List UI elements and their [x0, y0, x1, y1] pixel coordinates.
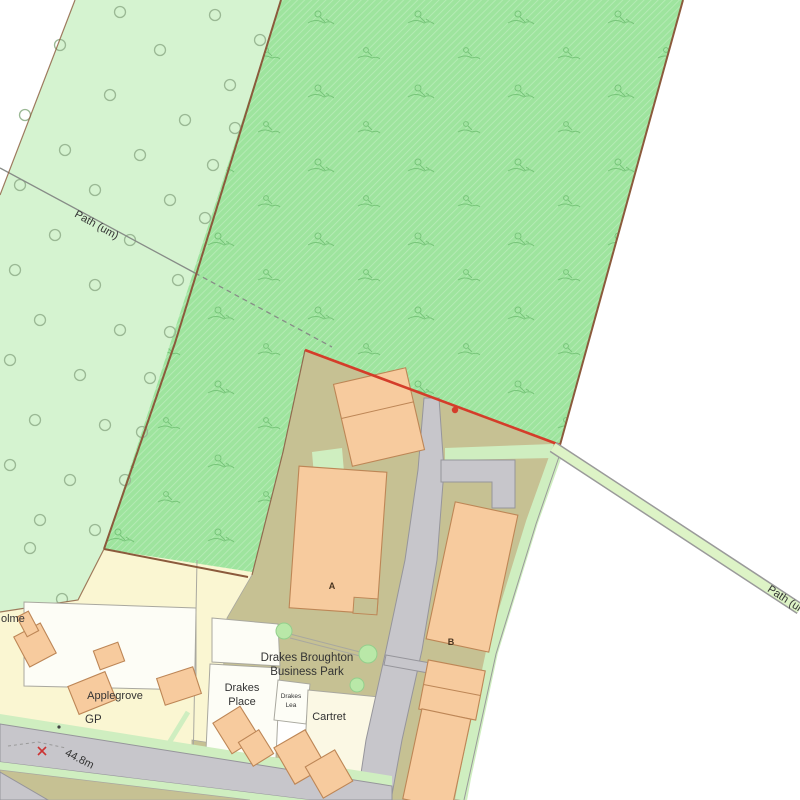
- spot-height-point: [57, 725, 60, 728]
- drakes-lea-label-2: Lea: [286, 702, 297, 709]
- drakes-place-label-2: Place: [228, 696, 256, 708]
- business-park-label-1: Drakes Broughton: [261, 652, 354, 664]
- unit-a: [289, 466, 387, 615]
- os-map: Path (um) Path (um) olme Applegrove GP 4…: [0, 0, 800, 800]
- bush-icon: [359, 645, 377, 663]
- drakes-lea-label-1: Drakes: [281, 693, 302, 700]
- building-a-label: A: [329, 581, 336, 591]
- map-canvas: Path (um) Path (um) olme Applegrove GP 4…: [0, 0, 800, 800]
- applegrove-label: Applegrove: [87, 690, 143, 702]
- building-b-label: B: [448, 637, 455, 647]
- gp-label: GP: [85, 714, 102, 726]
- holme-label: olme: [1, 613, 25, 625]
- cartret-label: Cartret: [312, 711, 346, 723]
- bush-icon: [350, 678, 364, 692]
- business-park-label-2: Business Park: [270, 666, 344, 678]
- drakes-place-label-1: Drakes: [225, 682, 260, 694]
- bush-icon: [276, 623, 292, 639]
